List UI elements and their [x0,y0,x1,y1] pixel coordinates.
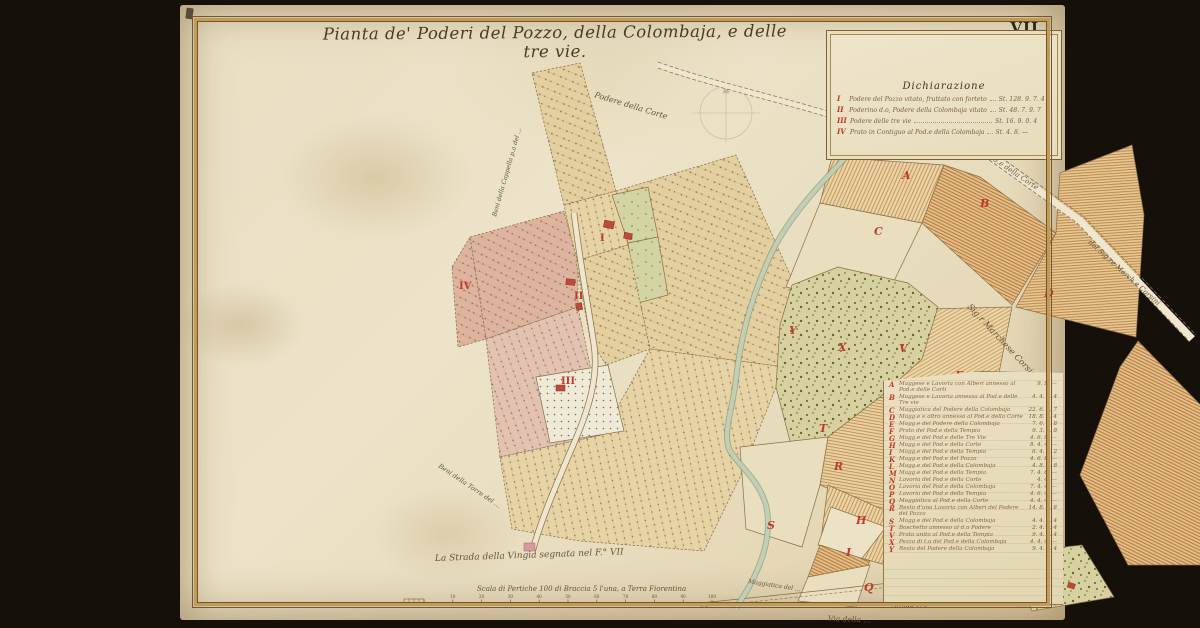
index-letter: A [889,381,899,388]
index-value: 7. 4. 4. — [1027,484,1057,490]
index-row: AMaggese e Lavoria con Alberi annesso al… [889,381,1057,394]
legend-value: St. 16. 9. 0. 4 [995,117,1051,127]
legend-text: Podere del Pozzo vitato, fruttato con fo… [849,95,986,105]
index-value: 18. 8. 6. 4 [1027,414,1057,420]
index-text: Magg.e del Pod.e della Colombaja [899,518,1027,524]
index-text: Resto d'una Lavoria con Alberi del Poder… [899,505,1027,518]
index-rows: AMaggese e Lavoria con Alberi annesso al… [889,381,1057,553]
index-row: DMagg.e e altro annesso al Pod.e della C… [889,414,1057,421]
map-letter-H: H [855,514,867,527]
index-value: 14. 8. 9. 8 [1027,505,1057,511]
legend-row: IPodere del Pozzo vitato, fruttato con f… [837,94,1051,105]
index-row: HMagg.e del Pod.e della Corte8. 4. 4. — [889,442,1057,449]
legend-leader [990,100,996,101]
scale-bar: Scala di Pertiche 100 di Braccia 5 l'una… [404,585,716,606]
index-row: EMagg.e del Podere della Colombaja7. 6. … [889,421,1057,428]
index-value: 6. 4. 2. 2 [1027,449,1057,455]
map-canvas: ABCDEFGHIKLMQRSTVXY IIIIIIIV Podere dell… [360,10,1200,625]
map-label-8: La Strada della Vingia segnata nel F.° V… [434,547,625,564]
map-label-1: Beni della Cappella p.a del … [491,127,523,219]
scale-tick-label: 70 [623,594,629,599]
index-row: KMagg.e del Pod.e del Pozzo4. 6. 8. — [889,456,1057,463]
index-value: 9. 3. 4. 8 [1027,428,1057,434]
index-row: MMagg.e del Pod.e della Tempia7. 4. 6. — [889,470,1057,477]
map-letter-D: D [1043,287,1054,300]
legend-value: St. 128. 9. 7. 4 [999,95,1051,105]
index-value: 9. 4. 6. 4 [1027,546,1057,552]
index-row: LMagg.e del Pod.e della Colombaja4. 8. 4… [889,463,1057,470]
index-text: Resto del Podere della Colombaja [899,546,1027,552]
legend-value: St. 4. 8. — [996,128,1052,138]
map-letter-X: X [837,341,847,354]
index-text: Magg.e del Pod.e della Tempia [899,470,1027,476]
map-label-13: Via della … [828,614,871,624]
index-row: RResto d'una Lavoria con Alberi del Pode… [889,505,1057,518]
map-letter-C: C [874,225,883,238]
index-text: Magg.e del Pod.e della Corte [899,442,1027,448]
index-text: Magg.e e altro annesso al Pod.e della Co… [899,414,1027,420]
legend-numeral: IV [837,127,850,138]
map-letter-I: I [845,546,852,559]
index-value: 7. 4. 6. — [1027,470,1057,476]
index-row: BMaggese e Lavoria annessa al Pod.e dell… [889,394,1057,407]
map-letter-R: R [833,460,843,473]
index-text: Lavoria del Pod.e della Colombaja [899,484,1027,490]
map-title: Pianta de' Poderi del Pozzo, della Colom… [320,21,790,62]
scale-tick-label: 10 [450,594,456,599]
legend-value: St. 48. 7. 9. 7 [999,106,1051,116]
legend-text: Prato in Contiguo al Pod.e della Colomba… [850,128,984,138]
index-value: 8. 4. 4. — [1027,442,1057,448]
index-value: 4. 4. 4. — [1027,539,1057,545]
index-letter: B [889,394,899,401]
index-text: Magg.e del Pod.e delle Tre Vie [899,435,1027,441]
index-row: GMagg.e del Pod.e delle Tre Vie4. 6. 9. … [889,435,1057,442]
map-letter-Q: Q [864,581,874,594]
map-numeral-II: II [574,291,584,302]
index-value: 4. 4. 4. 4 [1027,518,1057,524]
scale-caption: Scala di Pertiche 100 di Braccia 5 l'una… [477,585,686,593]
index-text: Lavoria del Pod.e della Corte [899,477,1027,483]
scale-tick-label: 60 [594,594,600,599]
legend-row: IVPrato in Contiguo al Pod.e della Colom… [837,127,1051,138]
index-text: Maggiatica del Podere della Colombaja [899,407,1027,413]
map-letter-T: T [819,422,828,435]
photo-background: ABCDEFGHIKLMQRSTVXY IIIIIIIV Podere dell… [0,0,1200,628]
index-row: TBoschetto annesso al d.o Podere2. 4. 4.… [889,525,1057,532]
index-text: Maggese e Lavoria con Alberi annesso al … [899,381,1027,394]
legend-text: Podere delle tre vie [850,117,911,127]
index-row: CMaggiatica del Podere della Colombaja22… [889,407,1057,414]
index-text: Magg.e del Podere della Colombaja [899,421,1027,427]
map-sheet: ABCDEFGHIKLMQRSTVXY IIIIIIIV Podere dell… [180,5,1065,620]
index-row: OLavoria del Pod.e della Colombaja7. 4. … [889,484,1057,491]
map-letter-Y: Y [789,324,798,337]
index-text: Boschetto annesso al d.o Podere [899,525,1027,531]
index-text: Lavoria del Pod.e della Tempia [899,491,1027,497]
legend-text: Poderino d.o, Podere della Colombaja vit… [849,106,987,116]
index-letter: R [889,505,899,512]
index-value: 4. 8. 4. 8 [1027,463,1057,469]
map-letter-S: S [767,519,775,532]
legend-leader [990,111,996,112]
map-letter-B: B [979,197,989,210]
index-row: VPrato unito al Pod.e della Tempia9. 4. … [889,532,1057,539]
legend-leader [987,133,993,134]
scale-tick-label: 20 [479,594,485,599]
map-numeral-I: I [600,233,605,244]
index-row: SMagg.e del Pod.e della Colombaja4. 4. 4… [889,518,1057,525]
legend-box: Dichiarazione IPodere del Pozzo vitato, … [826,30,1062,160]
legend-title: Dichiarazione [837,81,1051,92]
index-value: 4. 6. 4. — [1027,491,1057,497]
index-value: 2. 4. 4. 4 [1027,525,1057,531]
index-row: PLavoria del Pod.e della Tempia4. 6. 4. … [889,491,1057,498]
index-row: NLavoria del Pod.e della Corte4. 4. — [889,477,1057,484]
index-value: 9. 4. 4. 4 [1027,532,1057,538]
index-row: XPezzo di t.a del Pod.e della Colombaja4… [889,539,1057,546]
index-row: FPrato del Pod.e della Tempia9. 3. 4. 8 [889,428,1057,435]
index-value: 7. 6. 8. 8 [1027,421,1057,427]
map-label-12: Maggiatica del … [747,578,802,593]
index-text: Prato unito al Pod.e della Tempia [899,532,1027,538]
scale-tick-label: 80 [652,594,658,599]
index-text: Magg.e del Pod.e della Colombaja [899,463,1027,469]
map-numeral-IV: IV [459,281,472,292]
index-value: 4. 4. — [1027,477,1057,483]
index-text: Magg.e del Pod.e della Tempia [899,449,1027,455]
legend-leader [914,122,992,123]
legend-numeral: III [837,116,850,127]
index-text: Maggiatica al Pod.e della Corte [899,498,1027,504]
scale-tick-label: 100 [708,594,716,599]
map-letter-A: A [901,169,911,182]
index-value: 4. 4. 4. — [1027,498,1057,504]
legend-row: IIIPodere delle tre vieSt. 16. 9. 0. 4 [837,116,1051,127]
map-letter-V: V [899,342,909,355]
sheet-corner-mark [185,8,193,20]
index-value: 4. 6. 9. — [1027,435,1057,441]
index-letter: Y [889,546,899,553]
map-label-0: Podere della Corte [592,90,668,121]
scale-tick-label: 30 [508,594,514,599]
index-text: Prato del Pod.e della Tempia [899,428,1027,434]
legend-rows: IPodere del Pozzo vitato, fruttato con f… [837,94,1051,137]
map-label-7: Beni della Torre del … [436,461,502,509]
scale-tick-label: 90 [681,594,687,599]
index-text: Magg.e del Pod.e del Pozzo [899,456,1027,462]
legend-numeral: I [837,94,849,105]
map-numeral-III: III [561,376,575,387]
legend-row: IIPoderino d.o, Podere della Colombaja v… [837,105,1051,116]
index-value: 4. 6. 8. — [1027,456,1057,462]
scale-tick-label: 40 [537,594,543,599]
scale-tick-label: 50 [565,594,571,599]
index-text: Pezzo di t.a del Pod.e della Colombaja [899,539,1027,545]
index-value: 22. 6. 2. 7 [1027,407,1057,413]
index-text: Maggese e Lavoria annessa al Pod.e delle… [899,394,1027,407]
index-value: 4. 4. 8. 4 [1027,394,1057,400]
index-row: YResto del Podere della Colombaja9. 4. 6… [889,546,1057,553]
index-row: QMaggiatica al Pod.e della Corte4. 4. 4.… [889,498,1057,505]
index-panel: AMaggese e Lavoria con Alberi annesso al… [883,371,1063,605]
index-row: IMagg.e del Pod.e della Tempia6. 4. 2. 2 [889,449,1057,456]
legend-numeral: II [837,105,849,116]
index-value: 9. 9. — [1027,381,1057,387]
